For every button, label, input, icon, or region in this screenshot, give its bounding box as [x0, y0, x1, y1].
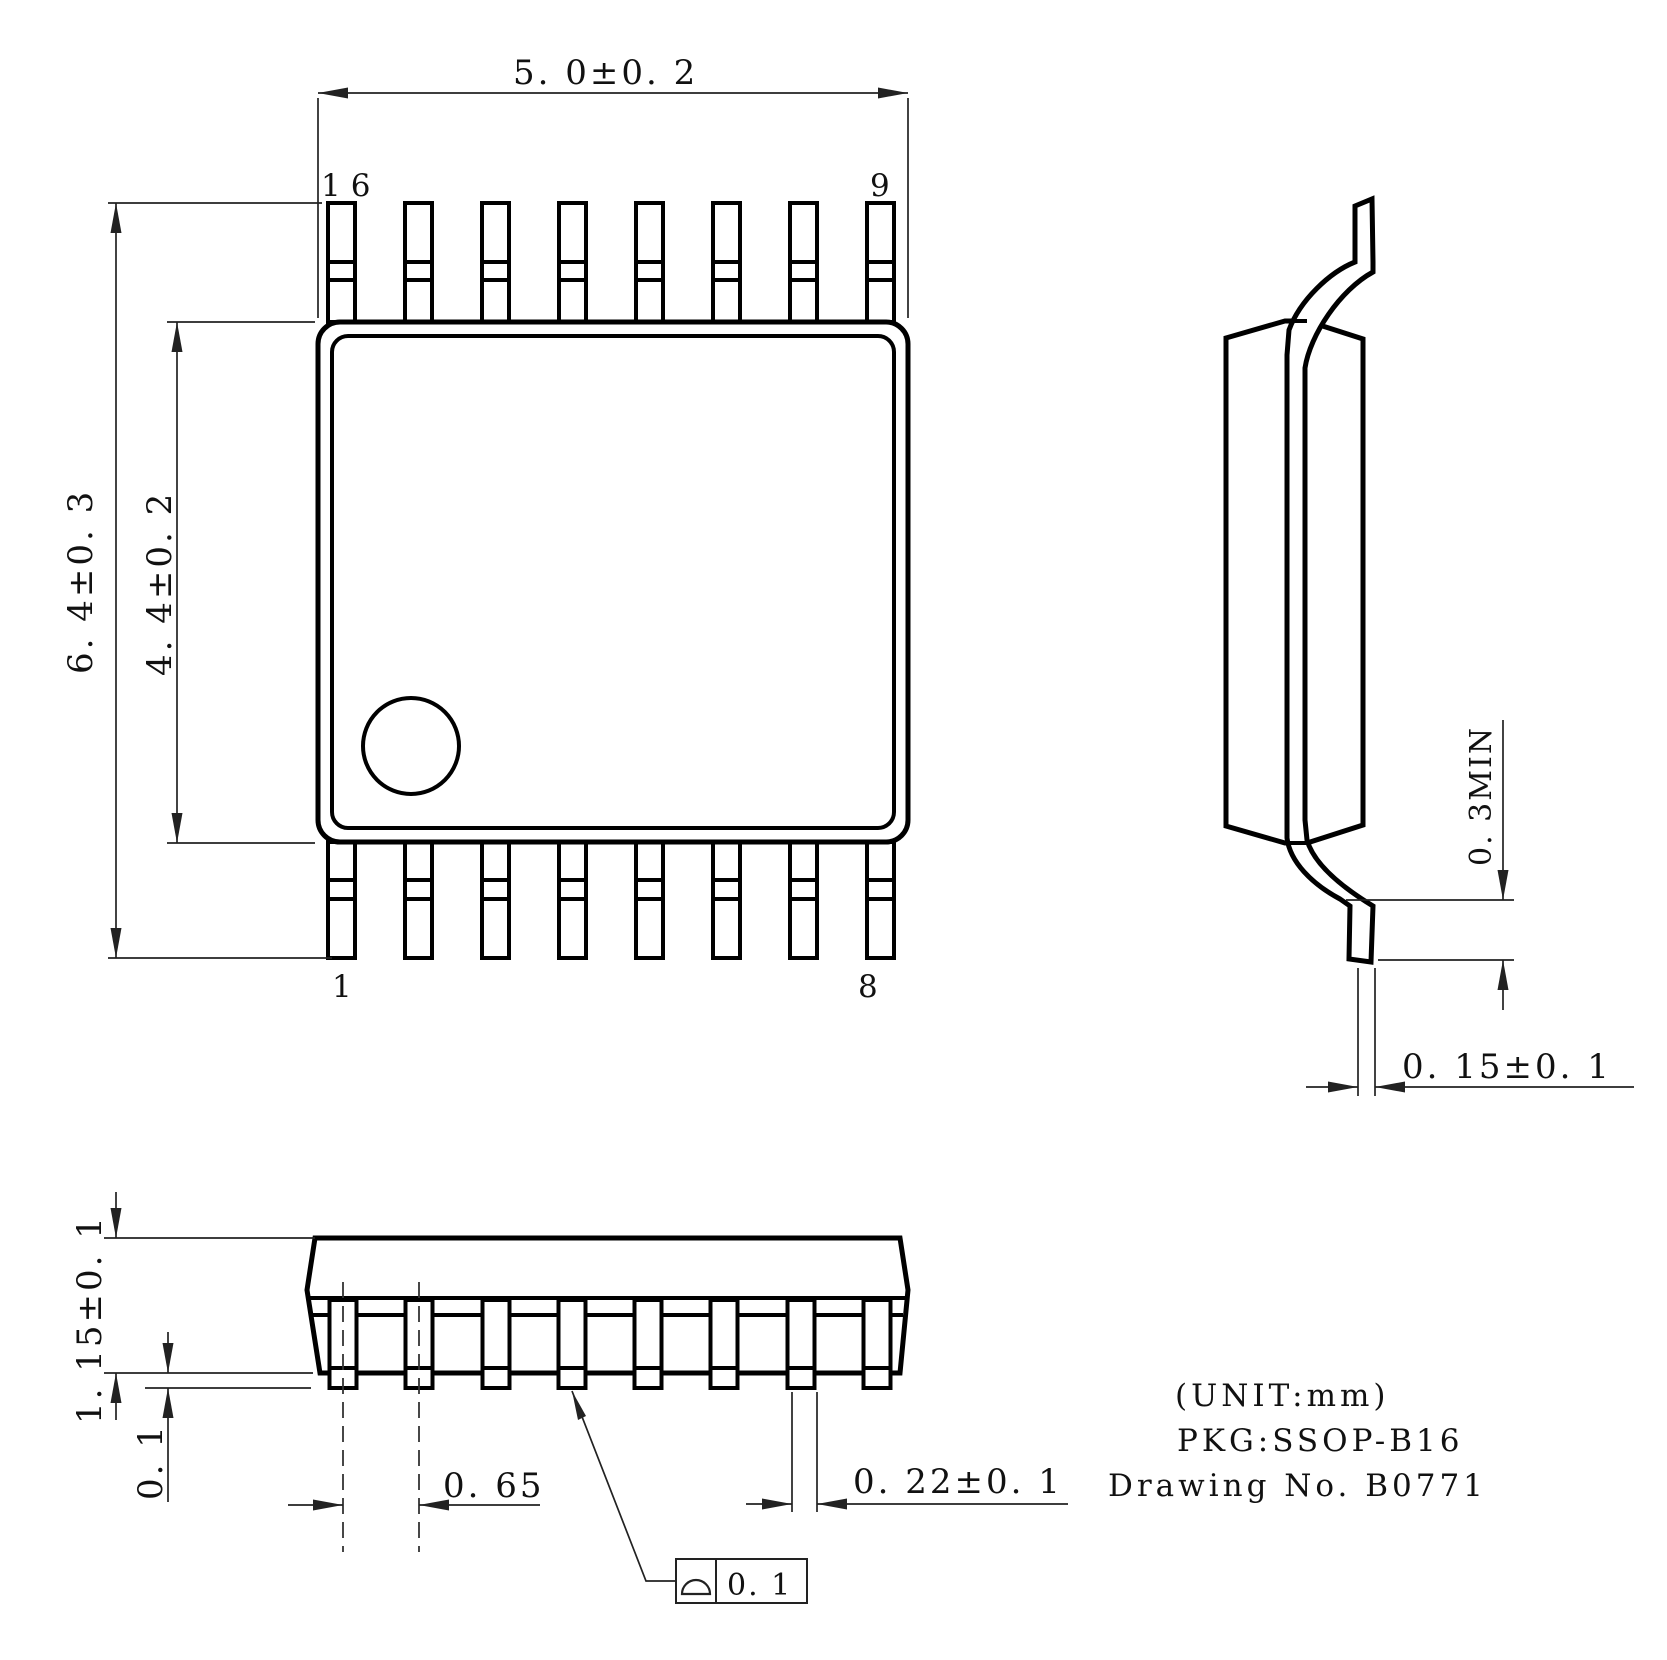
dim-lead-width-label: 0. 22±0. 1	[853, 1462, 1063, 1502]
dim-lead-span-label: 6. 4±0. 3	[61, 489, 101, 674]
arrow-left-icon	[817, 1499, 847, 1510]
arrow-left-icon	[318, 88, 348, 99]
arrow-down-icon	[111, 928, 122, 958]
arrow-right-icon	[878, 88, 908, 99]
pin-label-8: 8	[858, 969, 888, 1005]
arrow-up-icon	[111, 203, 122, 233]
arrow-down-icon	[172, 813, 183, 843]
pin-label-16: 16	[321, 168, 380, 204]
arrow-up-icon	[172, 322, 183, 352]
dim-standoff-side-label: 0. 3MIN	[1464, 726, 1499, 866]
arrow-down-icon	[163, 1343, 174, 1373]
top-view-pins-bottom	[328, 842, 894, 958]
flatness-callout: 0. 1	[572, 1391, 807, 1603]
pin1-index-mark	[363, 698, 459, 794]
dim-body-height-label: 1. 15±0. 1	[70, 1214, 110, 1424]
flatness-tolerance-label: 0. 1	[727, 1568, 792, 1603]
side-view: 0. 3MIN 0. 15±0. 1	[1226, 199, 1634, 1096]
pin-label-9: 9	[870, 168, 900, 204]
package-outline-drawing: 16 9 1 8 5. 0±0. 2 6. 4±0. 3	[0, 0, 1667, 1660]
arrow-right-icon	[1328, 1082, 1358, 1093]
front-body-outline	[307, 1238, 908, 1373]
dim-standoff-front: 0. 1	[131, 1332, 311, 1502]
dim-lead-thickness-label: 0. 15±0. 1	[1402, 1047, 1612, 1087]
top-view: 16 9 1 8 5. 0±0. 2 6. 4±0. 3	[61, 53, 908, 1005]
dim-standoff-front-label: 0. 1	[131, 1423, 171, 1500]
front-view: 1. 15±0. 1 0. 1 0. 65 0. 22±0	[70, 1192, 1068, 1603]
dim-body-width-label: 5. 0±0. 2	[513, 53, 698, 93]
unit-note: (UNIT:mm)	[1175, 1378, 1390, 1414]
dim-lead-pitch: 0. 65	[288, 1466, 545, 1511]
dim-body-length: 4. 4±0. 2	[140, 322, 315, 843]
arrow-left-icon	[1375, 1082, 1405, 1093]
arrow-right-icon	[762, 1499, 792, 1510]
pkg-label: PKG:SSOP-B16	[1177, 1423, 1463, 1459]
leader-arrow-icon	[572, 1391, 586, 1420]
dim-lead-pitch-label: 0. 65	[443, 1466, 545, 1506]
dim-body-height: 1. 15±0. 1	[70, 1192, 315, 1424]
top-view-pins-top	[328, 203, 894, 322]
dim-lead-span: 6. 4±0. 3	[61, 203, 332, 958]
title-block: (UNIT:mm) PKG:SSOP-B16 Drawing No. B0771	[1108, 1378, 1487, 1504]
dim-lead-thickness: 0. 15±0. 1	[1306, 968, 1634, 1096]
pin-label-1: 1	[332, 969, 362, 1005]
arrow-up-icon	[1498, 960, 1509, 990]
arrow-down-icon	[1498, 870, 1509, 900]
dim-body-length-label: 4. 4±0. 2	[140, 491, 180, 676]
dim-lead-width: 0. 22±0. 1	[746, 1392, 1068, 1512]
drawing-number: Drawing No. B0771	[1108, 1468, 1487, 1504]
arrow-down-icon	[111, 1208, 122, 1238]
dim-standoff-side: 0. 3MIN	[1346, 720, 1514, 1010]
arrow-up-icon	[163, 1388, 174, 1418]
drawing-canvas: 16 9 1 8 5. 0±0. 2 6. 4±0. 3	[0, 0, 1667, 1660]
arrow-up-icon	[111, 1373, 122, 1403]
arrow-right-icon	[313, 1500, 343, 1511]
